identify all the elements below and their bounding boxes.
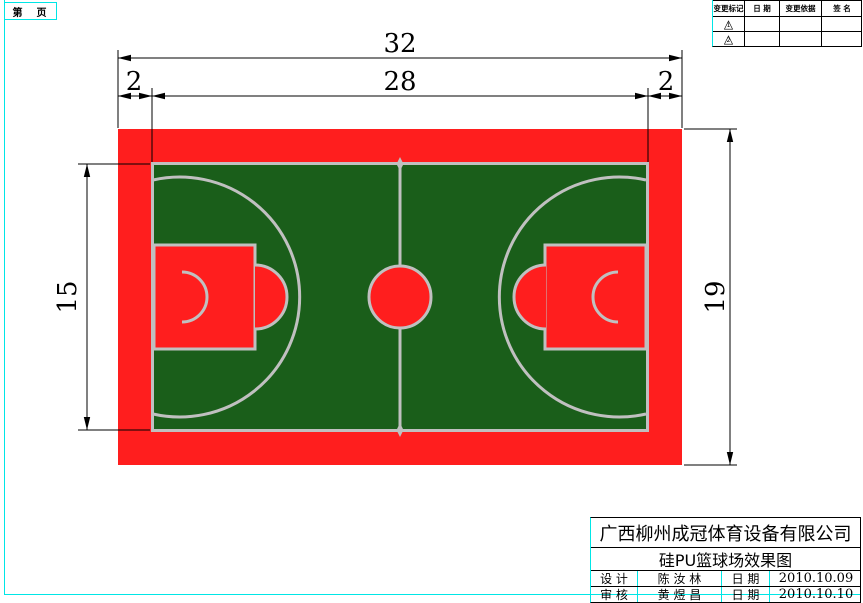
review-role-label: 审 核 [591,587,637,602]
reviewer-name: 黄 煜 昌 [637,587,721,602]
company-name: 广西柳州成冠体育设备有限公司 [591,518,860,547]
revision-row-basis [779,31,821,46]
drawing-title: 硅PU篮球场效果图 [591,547,860,570]
designer-name: 陈 汝 林 [637,571,721,586]
revision-row-signature [821,31,862,46]
key-area-left [154,245,255,349]
review-date: 2010.10.10 [769,587,862,602]
revision-row-basis [779,16,821,31]
design-date: 2010.10.09 [769,571,862,586]
dim-field-height: 15 [53,280,83,313]
sheet-number-label: 第 页 [13,4,49,19]
key-area-right [545,245,646,349]
center-circle [369,266,431,328]
dim-left-margin: 2 [126,67,143,97]
revision-row-signature [821,16,862,31]
dim-overall-height: 19 [701,280,731,313]
revision-table: 变更标记 日 期 变更依据 签 名 △1 △2 [712,0,862,47]
revision-header-mark: 变更标记 [713,0,744,16]
title-block-row-design: 设 计 陈 汝 林 日 期 2010.10.09 [591,570,860,586]
page-frame-left [4,0,5,594]
revision-row-date [744,31,779,46]
revision-row-date [744,16,779,31]
revision-triangle-icon: △2 [724,33,733,45]
title-block-row-review: 审 核 黄 煜 昌 日 期 2010.10.10 [591,586,860,602]
revision-header-signature: 签 名 [821,0,862,16]
sheet-number-box: 第 页 [4,2,57,20]
design-role-label: 设 计 [591,571,637,586]
revision-header-date: 日 期 [744,0,779,16]
revision-row-mark: △1 [713,16,744,31]
court-drawing: 32 28 2 2 15 19 [0,0,863,602]
dim-right-margin: 2 [658,67,675,97]
design-date-label: 日 期 [721,571,769,586]
dim-overall-width: 32 [383,29,416,59]
title-block: 广西柳州成冠体育设备有限公司 硅PU篮球场效果图 设 计 陈 汝 林 日 期 2… [590,517,861,603]
dim-inner-width: 28 [383,67,416,97]
revision-row-mark: △2 [713,31,744,46]
revision-header-basis: 变更依据 [779,0,821,16]
revision-triangle-icon: △1 [724,18,733,30]
review-date-label: 日 期 [721,587,769,602]
